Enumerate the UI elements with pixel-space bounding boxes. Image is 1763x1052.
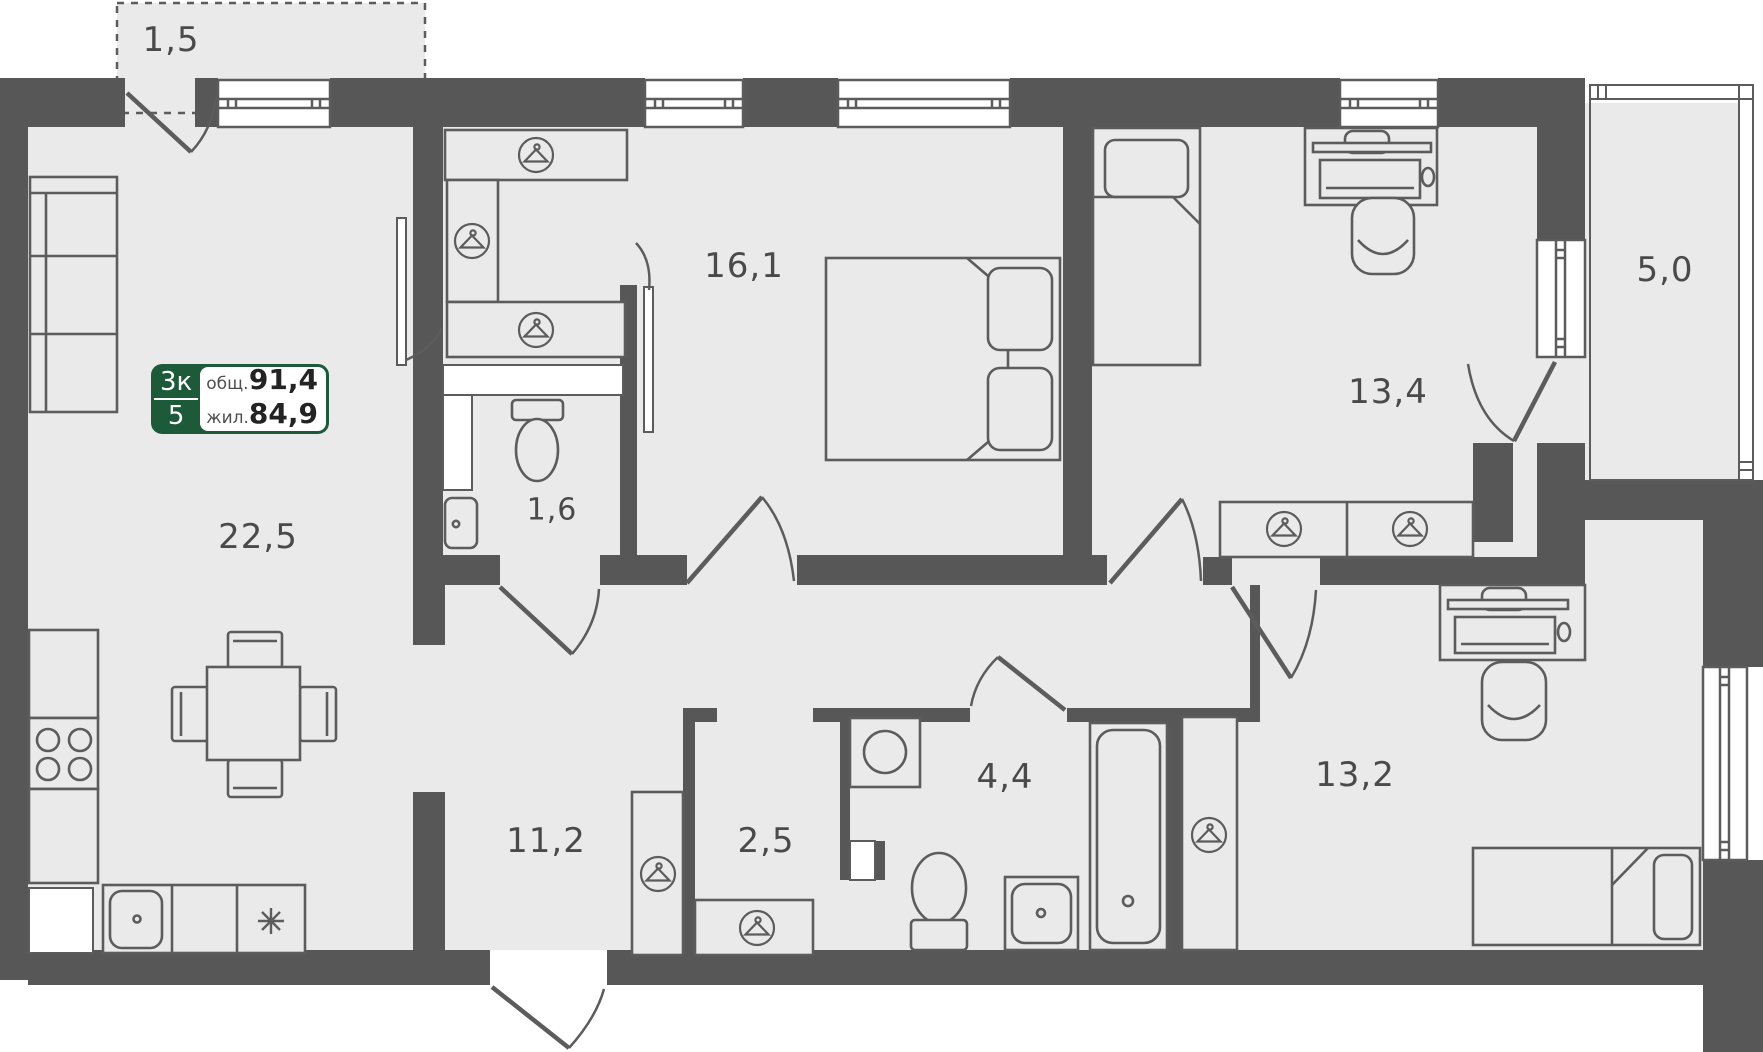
toilet-tank xyxy=(911,920,967,950)
rooms-count: 3к xyxy=(160,367,192,397)
pillow xyxy=(988,368,1052,450)
room-label-bedroom-second: 13,2 xyxy=(1315,755,1395,795)
window-kids-room xyxy=(1340,80,1438,127)
kitchen-sink xyxy=(110,891,162,948)
apartment-info-badge: 3к 5 общ. 91,4 жил. 84,9 xyxy=(152,365,328,433)
bedroom2-wardrobe xyxy=(1182,717,1237,950)
wc-sink xyxy=(445,498,477,548)
kitchen-counter-row xyxy=(103,885,305,953)
washing-machine xyxy=(850,718,920,787)
room-label-hallway: 11,2 xyxy=(506,821,586,861)
window-kitchen xyxy=(218,80,330,127)
hanger-icon xyxy=(1393,512,1427,546)
kitchen-cabinet xyxy=(30,177,117,412)
hanger-icon xyxy=(519,313,553,347)
entrance-opening xyxy=(490,950,607,986)
badge-divider xyxy=(154,398,198,400)
hanger-icon xyxy=(641,857,675,891)
hanger-icon xyxy=(1267,512,1301,546)
window-bedroom-second xyxy=(1703,667,1747,860)
living-area-label: жил. xyxy=(206,403,249,433)
window-bedroom-2 xyxy=(838,80,1010,127)
toilet-tank xyxy=(512,400,563,420)
bathtub xyxy=(1090,723,1167,950)
badge-areas: общ. 91,4 жил. 84,9 xyxy=(200,367,326,431)
floorplan: 1,5 22,5 16,1 1,6 11,2 2,5 4,4 13,4 5,0 … xyxy=(0,0,1763,1052)
room-label-balcony-small: 1,5 xyxy=(142,20,199,60)
total-area-label: общ. xyxy=(206,369,248,399)
floor-number: 5 xyxy=(168,401,185,431)
room-label-bathroom: 4,4 xyxy=(976,757,1033,797)
pillow xyxy=(1105,140,1188,197)
hanger-icon xyxy=(455,224,489,258)
badge-type-floor: 3к 5 xyxy=(152,365,200,433)
living-area-value: 84,9 xyxy=(249,399,318,429)
pillow xyxy=(988,268,1052,350)
hanger-icon xyxy=(1192,818,1226,852)
kitchen-counter-stove xyxy=(29,630,98,883)
hallway-wardrobe xyxy=(632,792,683,955)
toilet-bowl xyxy=(912,853,966,923)
total-area-row: общ. 91,4 xyxy=(206,365,318,399)
window-bedroom-1 xyxy=(645,80,743,127)
door-entrance xyxy=(492,987,604,1048)
dining-table xyxy=(207,667,300,760)
room-label-loggia: 5,0 xyxy=(1636,250,1693,290)
desk-chair xyxy=(1352,198,1414,274)
hanger-icon xyxy=(740,911,774,945)
room-label-wc: 1,6 xyxy=(527,493,578,528)
storage-wardrobe xyxy=(695,900,813,955)
room-label-bedroom: 16,1 xyxy=(704,246,784,286)
window-kids-loggia xyxy=(1537,240,1585,357)
double-bed xyxy=(826,258,1060,460)
loggia-floor xyxy=(1585,103,1739,480)
pillow xyxy=(1654,855,1692,939)
fridge-niche xyxy=(29,888,93,953)
room-label-wardrobe-room: 2,5 xyxy=(737,821,794,861)
living-area-row: жил. 84,9 xyxy=(206,399,318,433)
bedroom2-bed xyxy=(1473,848,1700,945)
room-label-kitchen-living: 22,5 xyxy=(218,517,298,557)
room-label-kids-room: 13,4 xyxy=(1348,372,1428,412)
kids-wardrobes xyxy=(1220,502,1473,557)
toilet-bowl xyxy=(516,419,558,481)
kids-bed xyxy=(1093,128,1200,365)
desk-chair xyxy=(1482,662,1546,740)
hanger-icon xyxy=(519,138,553,172)
total-area-value: 91,4 xyxy=(249,365,318,395)
